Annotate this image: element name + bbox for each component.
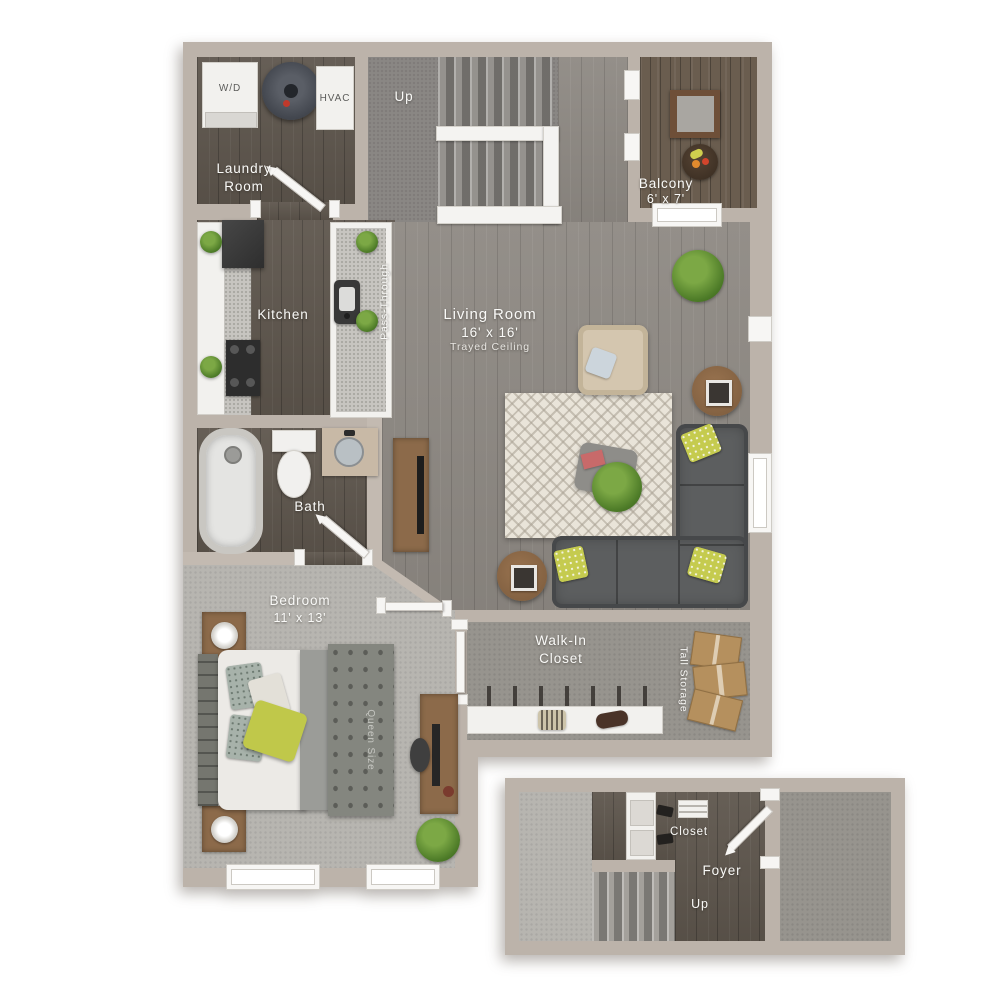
shelf-bin (630, 830, 654, 856)
lower-floor-inset: Closet Foyer Up (0, 0, 1000, 1000)
lower-left-floor (519, 792, 592, 941)
lower-right-floor (780, 792, 891, 941)
shelf-bin (630, 800, 654, 826)
lower-up-label: Up (670, 896, 730, 912)
door-jamb (760, 788, 780, 801)
floor-plan-canvas: Laundry Room W/D HVAC Up Balcony 6' x 7'… (0, 0, 1000, 1000)
foyer-doormat (678, 800, 708, 818)
door-jamb (760, 856, 780, 869)
foyer-label: Foyer (682, 862, 762, 880)
lower-closet-label: Closet (658, 825, 720, 840)
